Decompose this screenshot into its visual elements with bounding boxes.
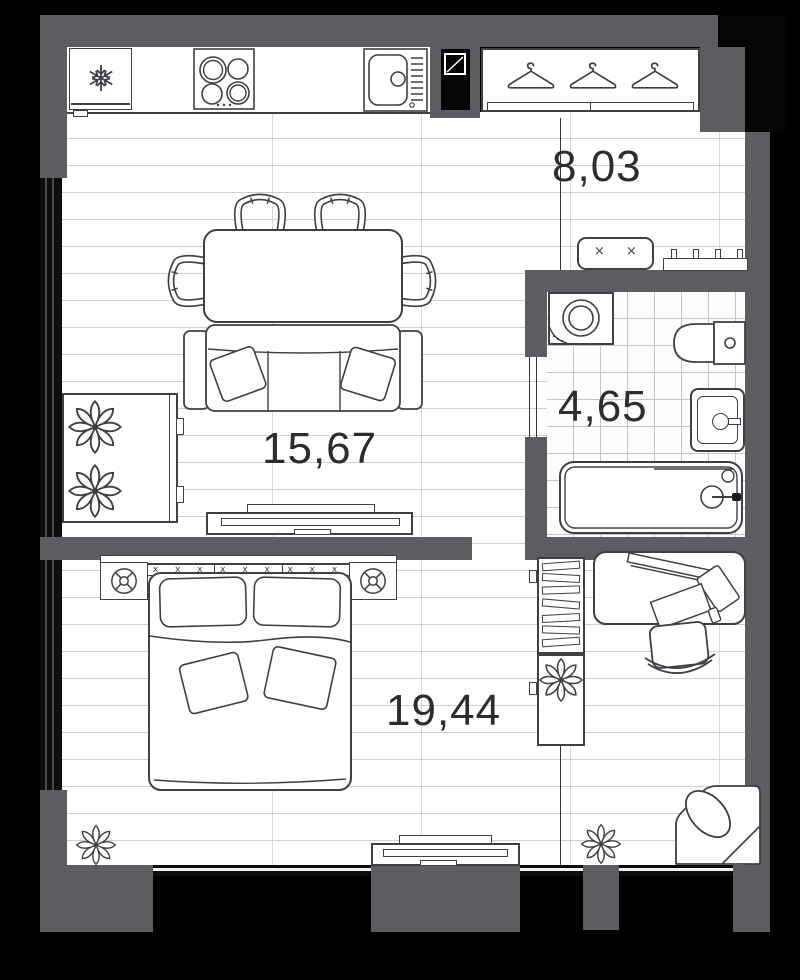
room-label-bedroom: 19,44 (386, 686, 501, 736)
wall-right (745, 132, 770, 865)
washbasin-tap (712, 413, 729, 430)
room-label-bathroom: 4,65 (558, 382, 648, 432)
bathroom-door-line-1 (529, 357, 530, 437)
flower-icon (538, 657, 584, 703)
tv-bracket-living (294, 529, 331, 535)
shoe-rack-post (715, 249, 721, 259)
hanger-icon (630, 60, 680, 94)
bathroom-door-line-2 (536, 357, 537, 437)
refrigerator-door-line (71, 103, 130, 105)
wall-hall-top-right (700, 47, 745, 132)
armchair (670, 778, 762, 868)
wall-bottom-left-block (67, 865, 153, 932)
wall-bottom-mid-pier (371, 865, 520, 932)
hanger-icon (506, 60, 556, 94)
zone-line-bedroom (560, 733, 561, 865)
bench-button-mark: × (594, 244, 605, 259)
desk-area (593, 546, 749, 686)
flower-icon (580, 823, 622, 865)
plant-console-edge (169, 393, 170, 523)
lamp-icon (109, 566, 139, 596)
hanger-icon (568, 60, 618, 94)
flower-icon (67, 463, 123, 519)
shoe-rack (663, 258, 748, 271)
flower-icon (75, 824, 117, 866)
shoe-rack-post (693, 249, 699, 259)
room-label-kitchen-living: 15,67 (262, 424, 377, 474)
dining-table (203, 229, 403, 323)
book (542, 585, 580, 594)
vent-shaft-icon (443, 52, 469, 78)
snowflake-icon (85, 62, 117, 94)
window-bottom-middle (520, 865, 583, 876)
washing-machine (548, 292, 615, 346)
tv-screen-living (221, 518, 400, 526)
floor-plan: × × x x x x x x x x x x x x (0, 0, 800, 980)
cabinet-handle (529, 682, 537, 695)
book (542, 625, 580, 634)
tv-screen-bedroom (383, 849, 508, 857)
wardrobe-track-divider (590, 102, 591, 111)
shoe-rack-post (671, 249, 677, 259)
wall-left-pier-bottom (40, 790, 67, 932)
plant-console-handle (176, 486, 184, 503)
wall-left-pier-top (40, 15, 67, 178)
window-bottom-left (153, 865, 371, 876)
wall-bottom-right-pier (733, 865, 770, 932)
cooktop (193, 48, 255, 110)
shoe-rack-post (737, 249, 743, 259)
plant-console-handle (176, 418, 184, 435)
bench-button-mark: × (626, 244, 637, 259)
double-bed (148, 572, 352, 792)
wall-bathroom-top (525, 270, 770, 292)
zone-line-hall (560, 118, 561, 270)
lamp-icon (358, 566, 388, 596)
room-label-hallway: 8,03 (552, 142, 642, 192)
bathtub (558, 460, 744, 535)
bench (577, 237, 654, 270)
cabinet-handle (529, 570, 537, 583)
refrigerator-handle (73, 110, 88, 117)
wall-bathroom-left-upper (525, 270, 547, 357)
toilet (670, 320, 748, 366)
kitchen-sink (363, 48, 428, 112)
window-left-bedroom (40, 560, 62, 790)
wall-top (40, 15, 718, 47)
sofa (183, 324, 423, 414)
wall-bottom-pier-2 (583, 865, 619, 930)
washbasin-tap-handle (728, 418, 741, 425)
window-left-living (40, 178, 62, 538)
tv-bracket-bedroom (420, 860, 457, 866)
flower-icon (67, 399, 123, 455)
